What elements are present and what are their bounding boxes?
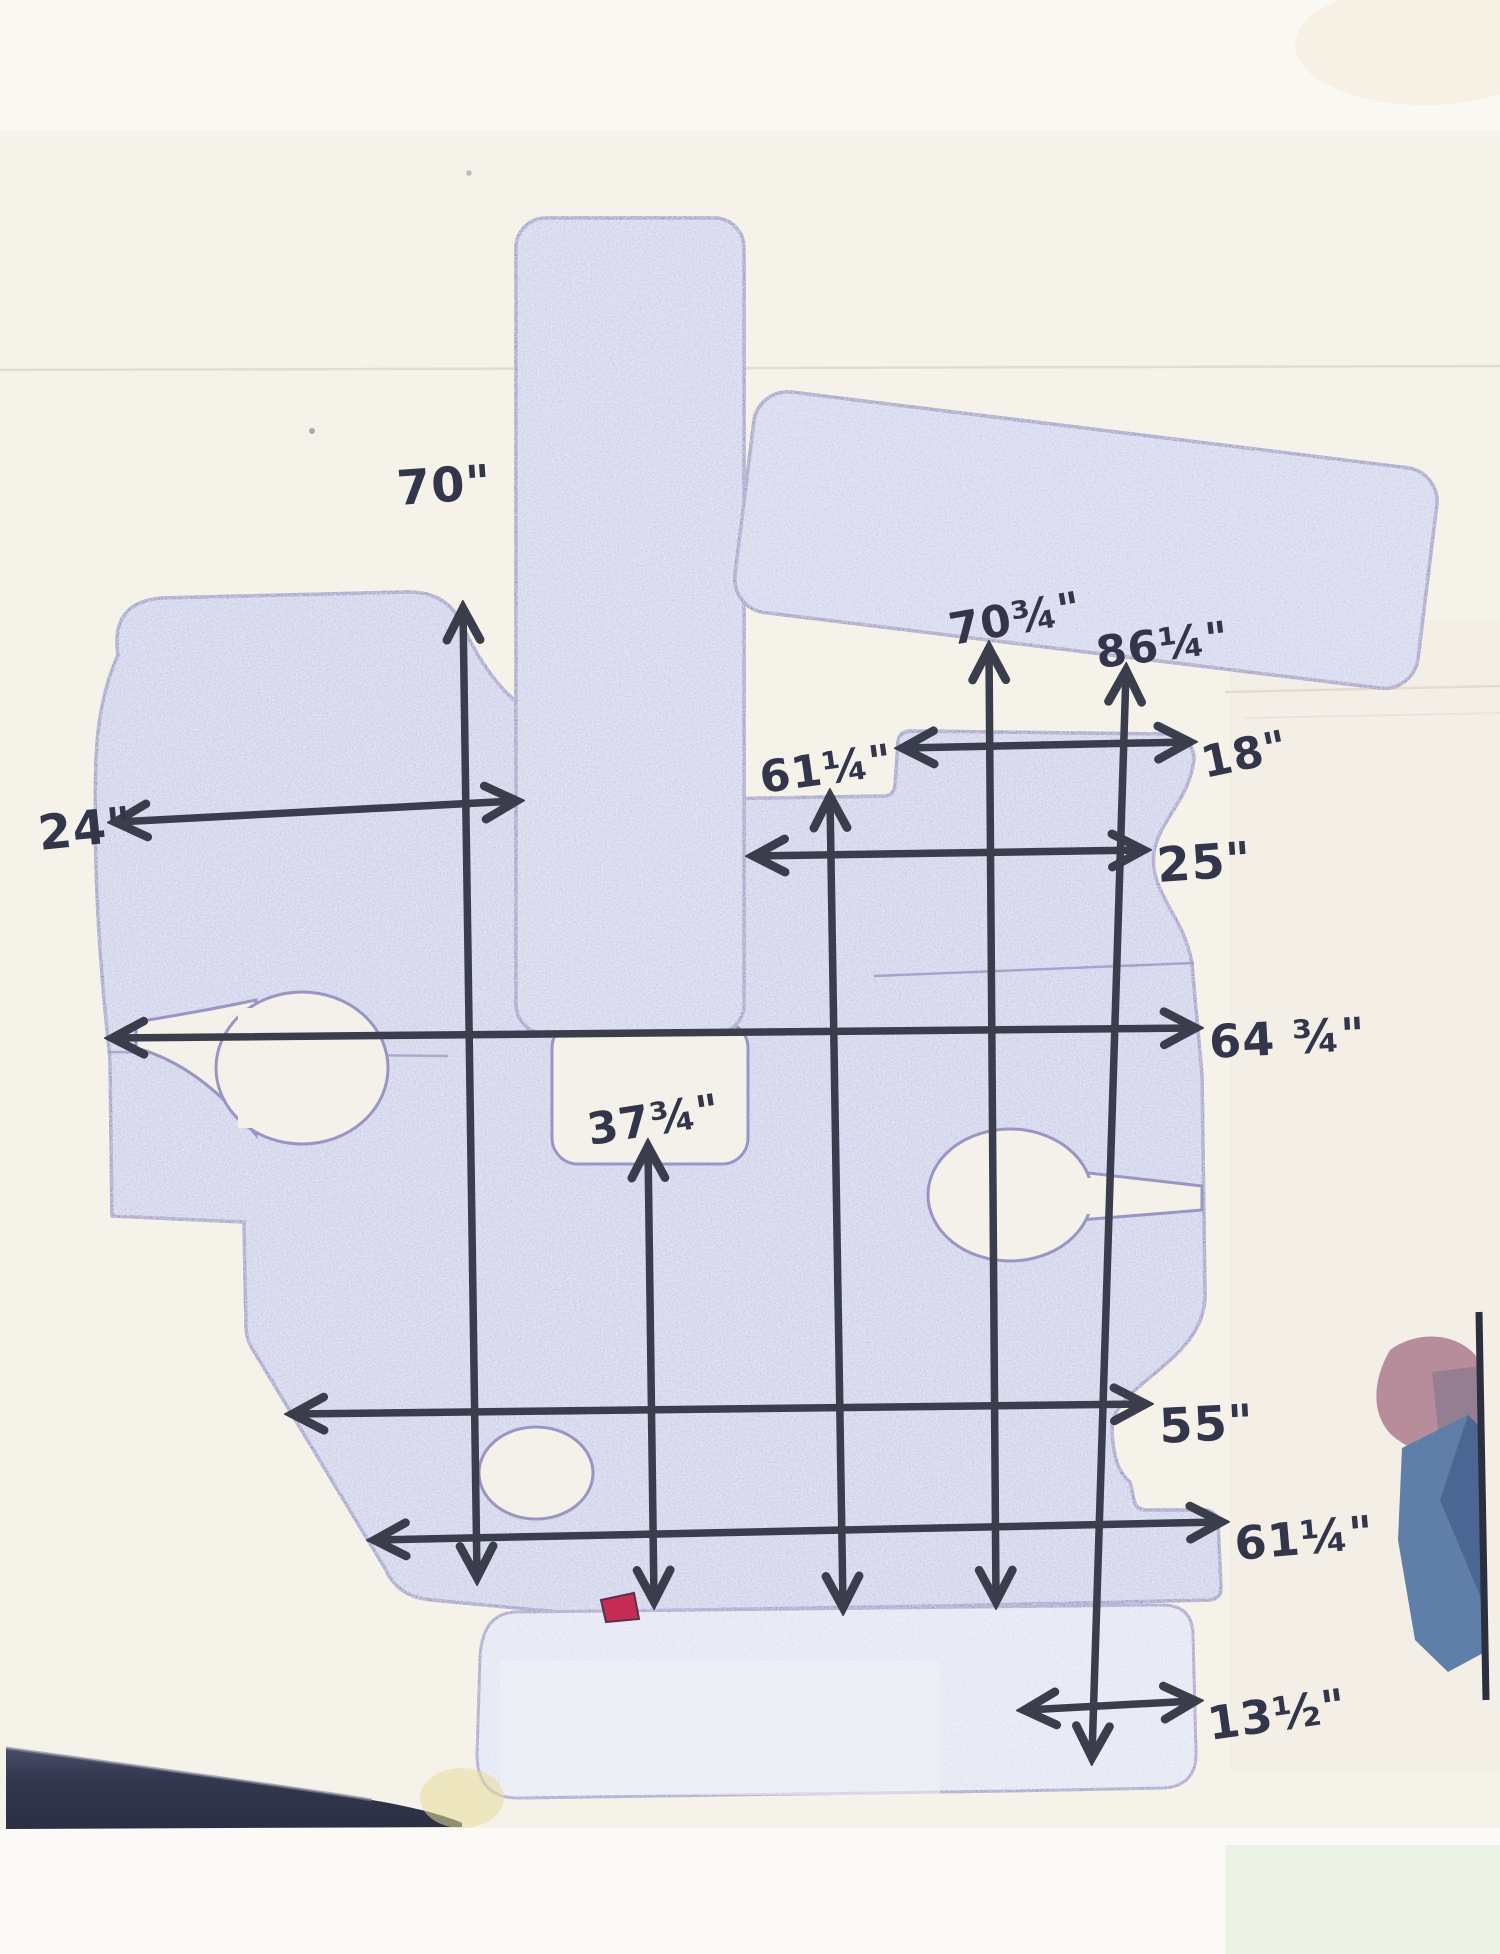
- paper-tint-green-corner: [1225, 1845, 1500, 1954]
- small-oval-cutout: [479, 1427, 593, 1519]
- photo-fragment-yellow-smudge: [420, 1768, 504, 1828]
- photo-fragment-navy-hull: [6, 1748, 462, 1829]
- scan-line-1: [0, 366, 1500, 370]
- speck-1: [309, 428, 315, 434]
- top-right-strip-piece: [731, 388, 1441, 692]
- bottom-flap-piece: [477, 1605, 1196, 1798]
- dimension-label-25: 25": [1155, 831, 1253, 893]
- template-drawing: 70" 70¾" 86¼" 61¼" 18" 24" 25" 64 ¾" 37¾…: [0, 0, 1500, 1954]
- paper-tint-top: [0, 0, 1500, 130]
- tall-strip-texture-2: [516, 218, 744, 1034]
- dimension-label-64-3-4: 64 ¾": [1208, 1007, 1367, 1069]
- left-cutout-patch: [238, 1008, 272, 1128]
- speck-3: [466, 170, 472, 176]
- bottom-flap-fade: [500, 1660, 940, 1795]
- top-right-strip-texture-2: [731, 388, 1441, 692]
- dimension-label-55: 55": [1158, 1394, 1256, 1455]
- dimension-label-24: 24": [35, 796, 135, 862]
- scanned-page: 70" 70¾" 86¼" 61¼" 18" 24" 25" 64 ¾" 37¾…: [0, 0, 1500, 1954]
- dimension-label-70: 70": [395, 454, 493, 516]
- center-runner-piece: [516, 218, 744, 1034]
- right-cutout-patch: [1066, 1178, 1096, 1214]
- dimension-label-61-1-4-v: 61¼": [756, 735, 895, 804]
